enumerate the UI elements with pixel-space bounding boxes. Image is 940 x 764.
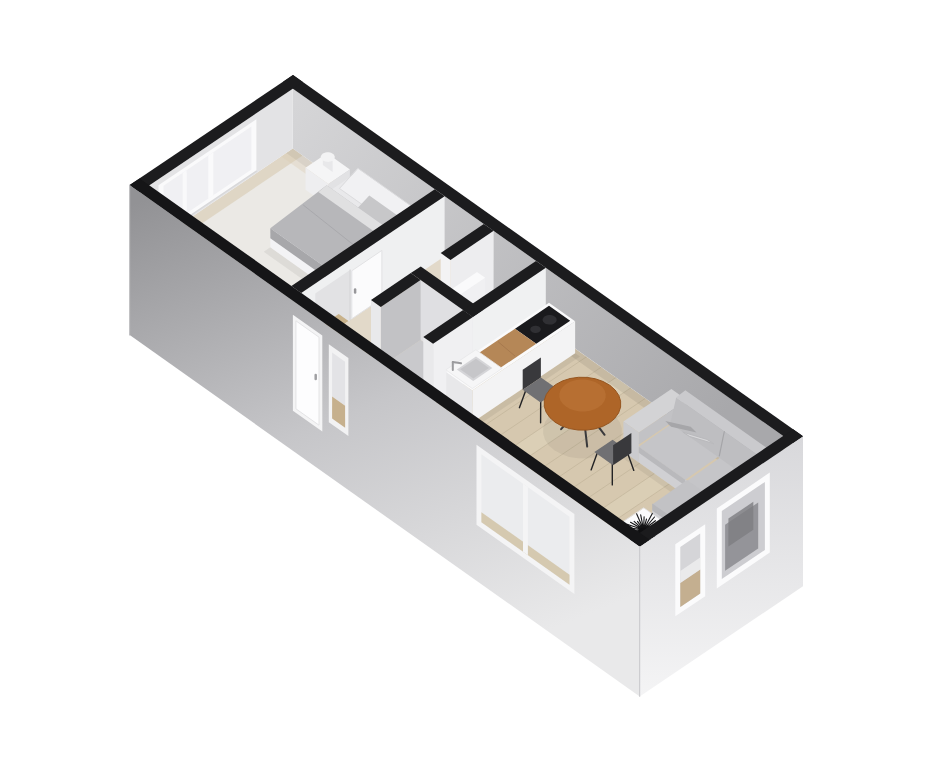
window-bedroom-mullion [183,170,187,216]
window-bedroom-mullion [208,152,213,198]
sidelight-window-glass [332,353,345,406]
entry-door-panel [296,321,319,425]
cooktop-burner [530,326,541,333]
floorplan-3d-render [0,0,940,764]
faucet-arm [453,362,461,363]
window-living-mullion [523,484,528,556]
dining-table-highlight [559,380,605,412]
floorplan-canvas [0,0,940,764]
